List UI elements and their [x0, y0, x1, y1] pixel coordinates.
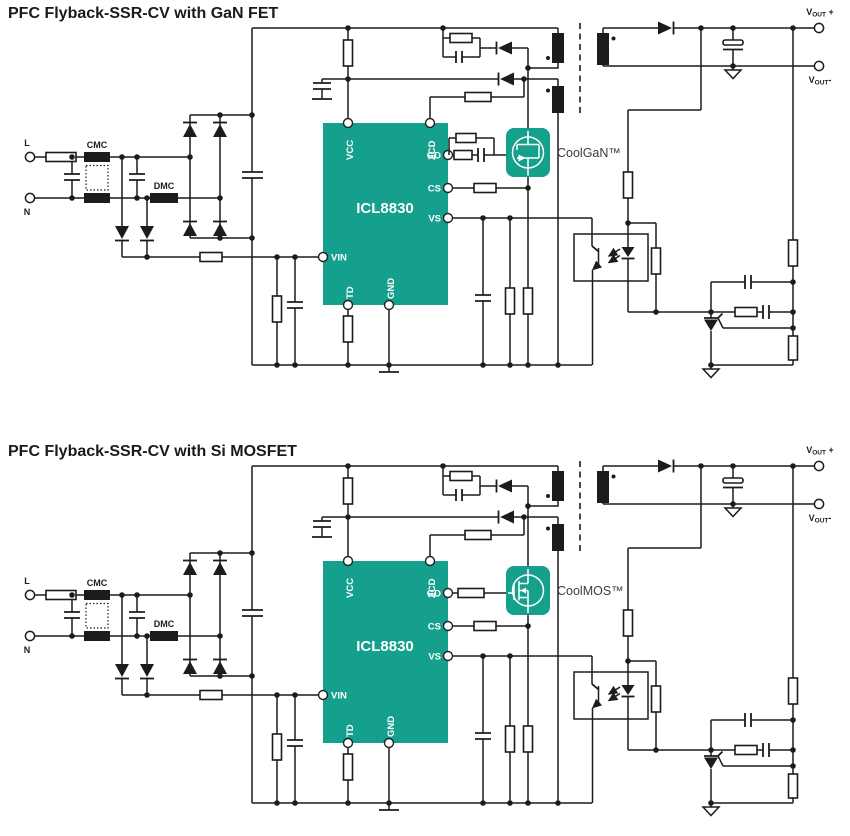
diagram1-title: PFC Flyback-SSR-CV with GaN FET	[8, 5, 278, 22]
coolgan-label: CoolGaN™	[557, 146, 621, 160]
gate-resistor-1	[456, 134, 476, 143]
coolmos-fet	[506, 566, 550, 615]
gate-resistor	[458, 589, 484, 598]
diagram-simosfet: PFC Flyback-SSR-CV with Si MOSFET CoolMO…	[8, 443, 624, 615]
gate-cap	[478, 148, 484, 162]
diagram2-title: PFC Flyback-SSR-CV with Si MOSFET	[8, 443, 297, 460]
coolgan-fet	[506, 128, 550, 177]
coolmos-label: CoolMOS™	[557, 584, 624, 598]
diagram-gan: PFC Flyback-SSR-CV with GaN FET CoolGaN™	[8, 5, 621, 177]
gate-resistor-2	[454, 151, 472, 160]
schematic-page: ICL8830 VCC ZCD GD CS VS VIN TD GND	[0, 0, 850, 836]
